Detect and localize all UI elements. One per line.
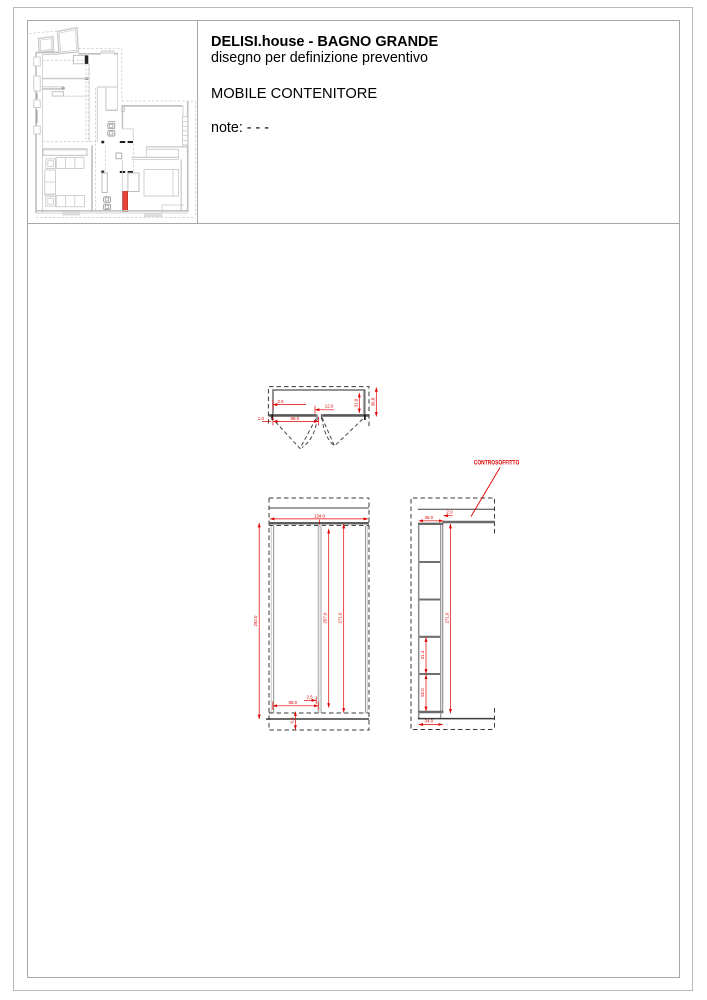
svg-text:88.0: 88.0 bbox=[291, 416, 300, 421]
svg-text:CONTROSOFFITTO: CONTROSOFFITTO bbox=[474, 459, 520, 466]
svg-text:1.0: 1.0 bbox=[258, 416, 265, 421]
svg-text:257.0: 257.0 bbox=[323, 612, 328, 624]
svg-text:52.0: 52.0 bbox=[420, 688, 425, 697]
svg-text:31.8: 31.8 bbox=[353, 398, 358, 407]
svg-text:2.5: 2.5 bbox=[307, 694, 314, 699]
svg-text:34.0: 34.0 bbox=[425, 719, 434, 724]
svg-text:271.0: 271.0 bbox=[338, 612, 343, 624]
svg-text:2.0: 2.0 bbox=[447, 510, 454, 515]
svg-text:6.5: 6.5 bbox=[289, 717, 294, 724]
svg-text:134.0: 134.0 bbox=[314, 513, 326, 518]
svg-text:271.0: 271.0 bbox=[444, 612, 449, 624]
svg-text:12.0: 12.0 bbox=[325, 404, 334, 409]
svg-text:88.0: 88.0 bbox=[289, 700, 298, 705]
svg-text:31.4: 31.4 bbox=[420, 650, 425, 659]
svg-text:2.5: 2.5 bbox=[278, 399, 285, 404]
svg-text:36.0: 36.0 bbox=[425, 515, 434, 520]
svg-text:292.0: 292.0 bbox=[253, 615, 258, 627]
svg-text:36.8: 36.8 bbox=[370, 397, 375, 406]
